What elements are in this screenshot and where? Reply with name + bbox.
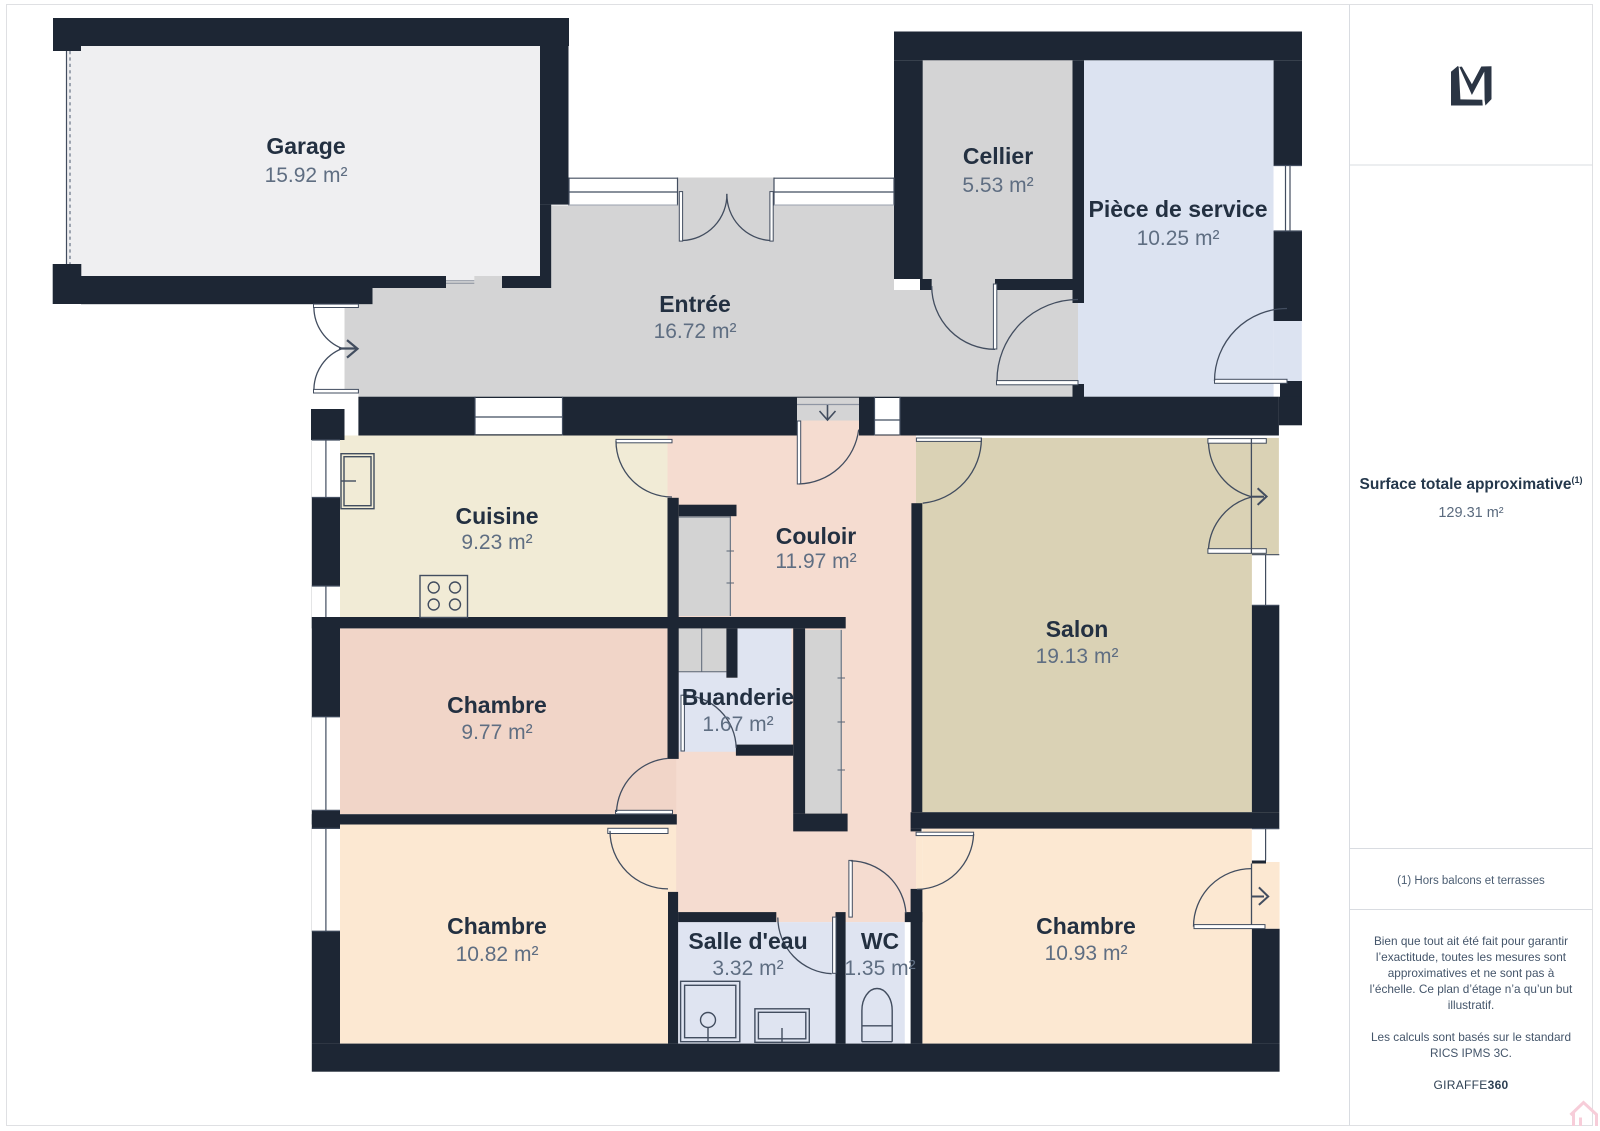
svg-text:Les calculs sont basés sur le: Les calculs sont basés sur le standard <box>1371 1030 1571 1044</box>
svg-text:l’échelle. Ce plan d’étage n’a: l’échelle. Ce plan d’étage n’a qu’un but <box>1370 982 1573 996</box>
svg-text:Surface totale approximative(1: Surface totale approximative(1) <box>1360 475 1583 493</box>
svg-text:Garage: Garage <box>266 133 345 159</box>
svg-text:11.97 m²: 11.97 m² <box>775 550 856 573</box>
svg-text:16.72 m²: 16.72 m² <box>654 320 737 343</box>
svg-text:9.23 m²: 9.23 m² <box>461 531 532 554</box>
svg-text:1.67 m²: 1.67 m² <box>702 713 773 736</box>
svg-text:GIRAFFE360: GIRAFFE360 <box>1433 1078 1508 1092</box>
svg-text:Couloir: Couloir <box>776 523 857 549</box>
svg-text:5.53 m²: 5.53 m² <box>962 174 1033 197</box>
svg-text:Bien que tout ait été fait pou: Bien que tout ait été fait pour garantir <box>1374 934 1568 948</box>
svg-text:illustratif.: illustratif. <box>1448 998 1495 1012</box>
svg-text:Salle d'eau: Salle d'eau <box>688 928 807 954</box>
svg-text:Chambre: Chambre <box>1036 913 1136 939</box>
svg-text:RICS IPMS 3C.: RICS IPMS 3C. <box>1430 1046 1512 1060</box>
svg-text:Buanderie: Buanderie <box>682 684 794 710</box>
svg-text:19.13 m²: 19.13 m² <box>1036 645 1119 668</box>
svg-text:10.82 m²: 10.82 m² <box>456 943 539 966</box>
svg-text:Chambre: Chambre <box>447 913 547 939</box>
svg-text:Chambre: Chambre <box>447 692 547 718</box>
svg-text:129.31 m²: 129.31 m² <box>1438 505 1503 521</box>
svg-text:Entrée: Entrée <box>659 291 731 317</box>
svg-text:WC: WC <box>861 928 899 954</box>
svg-text:approximatives et ne sont pas: approximatives et ne sont pas à <box>1388 966 1555 980</box>
svg-text:l’exactitude, toutes les mesur: l’exactitude, toutes les mesures sont <box>1376 950 1567 964</box>
svg-text:1.35 m²: 1.35 m² <box>844 957 915 980</box>
svg-text:10.93 m²: 10.93 m² <box>1045 942 1128 965</box>
svg-text:9.77 m²: 9.77 m² <box>461 721 532 744</box>
svg-text:15.92 m²: 15.92 m² <box>265 164 348 187</box>
svg-text:10.25 m²: 10.25 m² <box>1137 227 1220 250</box>
svg-text:3.32 m²: 3.32 m² <box>712 957 783 980</box>
svg-text:(1) Hors balcons et terrasses: (1) Hors balcons et terrasses <box>1397 875 1545 887</box>
svg-text:Salon: Salon <box>1046 616 1109 642</box>
svg-text:Cellier: Cellier <box>963 143 1033 169</box>
svg-text:Cuisine: Cuisine <box>455 503 538 529</box>
svg-text:Pièce de service: Pièce de service <box>1088 196 1267 222</box>
